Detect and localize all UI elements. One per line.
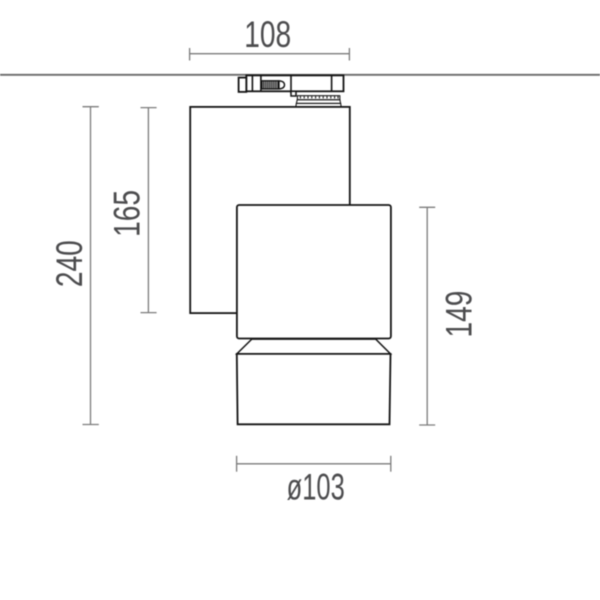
svg-text:108: 108 xyxy=(244,14,291,56)
svg-text:ø103: ø103 xyxy=(287,466,345,508)
svg-text:149: 149 xyxy=(438,291,480,338)
svg-text:240: 240 xyxy=(49,240,91,287)
svg-text:165: 165 xyxy=(106,190,148,237)
